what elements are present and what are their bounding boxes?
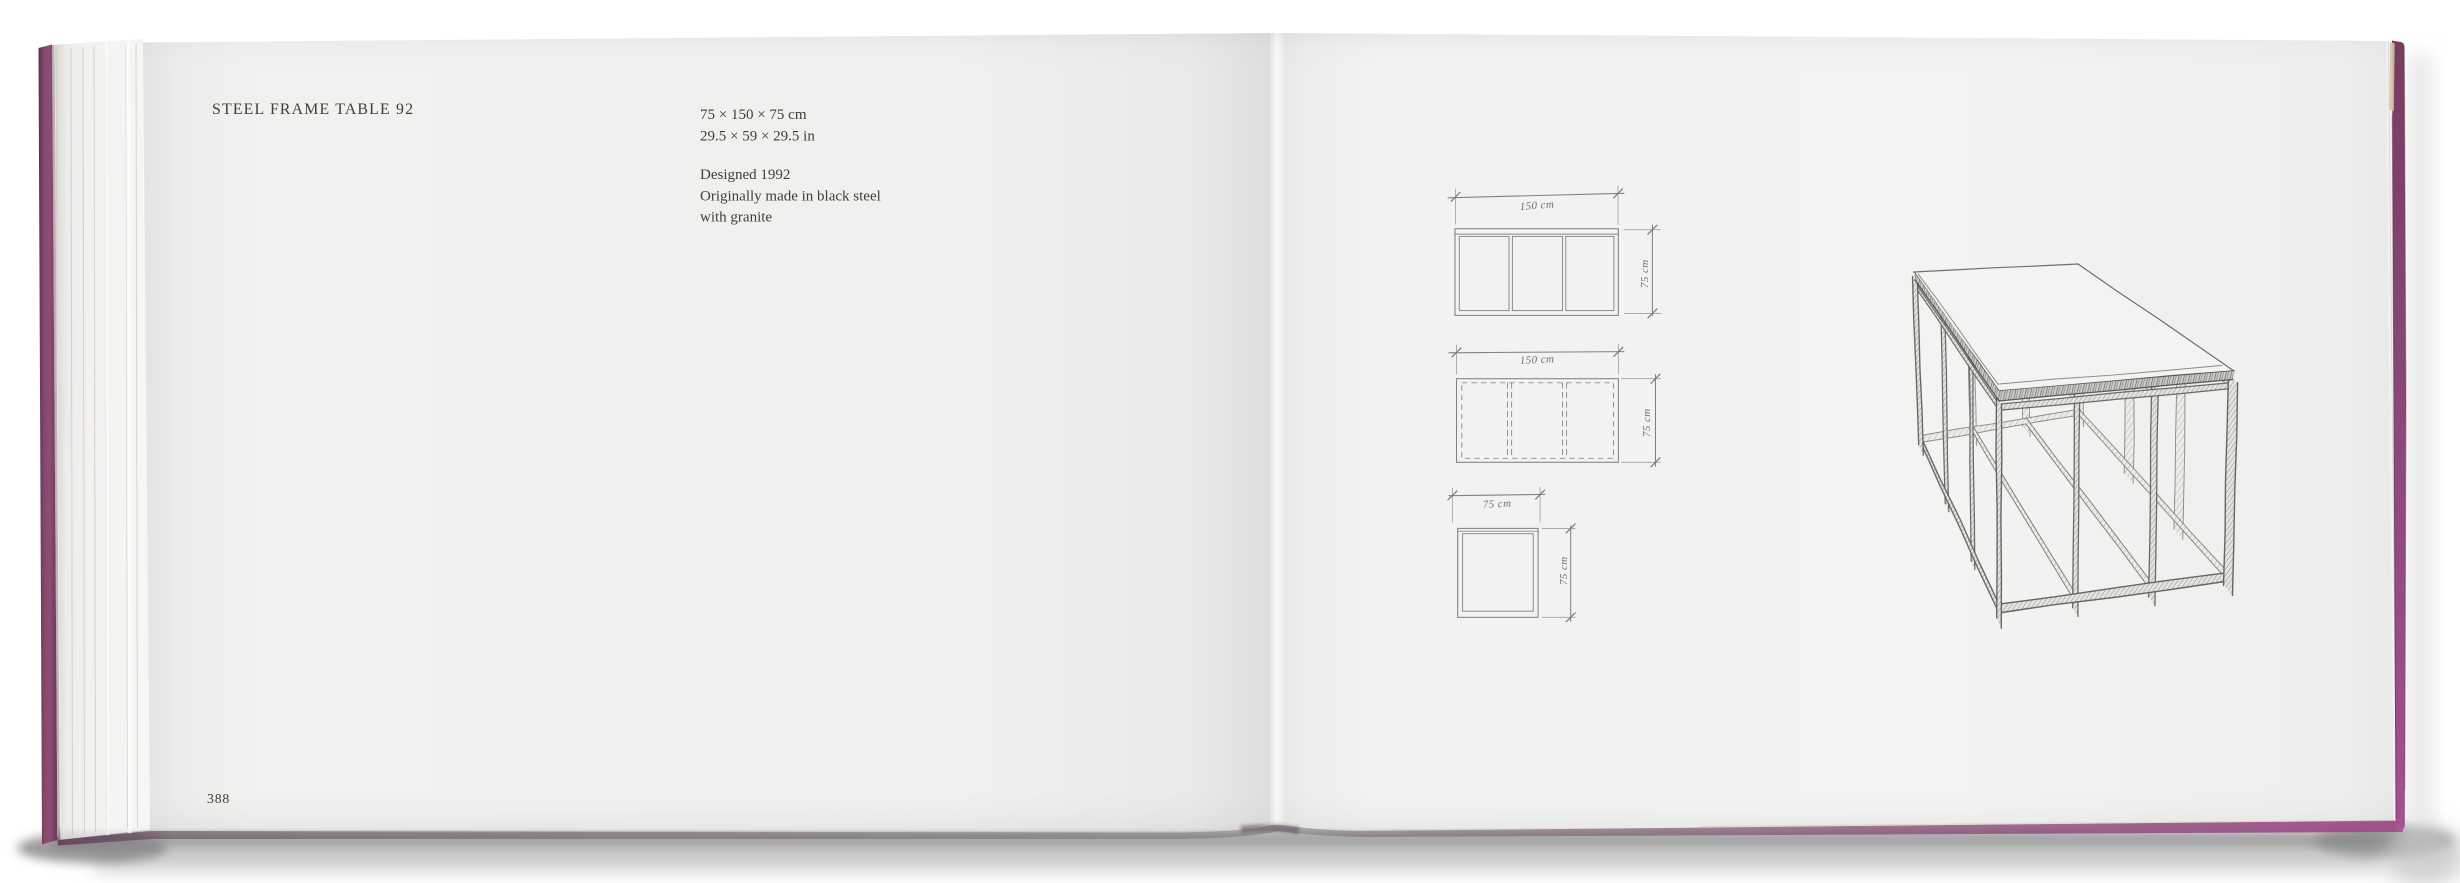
svg-text:with granite: with granite [700,210,772,226]
svg-text:75 × 150 × 75 cm: 75 × 150 × 75 cm [700,107,807,123]
svg-text:STEEL FRAME TABLE 92: STEEL FRAME TABLE 92 [212,101,414,118]
svg-text:Originally made in black steel: Originally made in black steel [700,188,881,204]
svg-text:150 cm: 150 cm [1519,199,1554,213]
svg-text:75 cm: 75 cm [1641,408,1653,437]
svg-text:150 cm: 150 cm [1520,353,1555,367]
svg-text:388: 388 [207,791,230,806]
svg-text:Designed 1992: Designed 1992 [700,167,790,183]
svg-text:75 cm: 75 cm [1483,498,1512,511]
svg-text:75 cm: 75 cm [1639,259,1651,288]
svg-text:75 cm: 75 cm [1558,556,1570,585]
svg-text:29.5 × 59 × 29.5 in: 29.5 × 59 × 29.5 in [700,128,815,144]
